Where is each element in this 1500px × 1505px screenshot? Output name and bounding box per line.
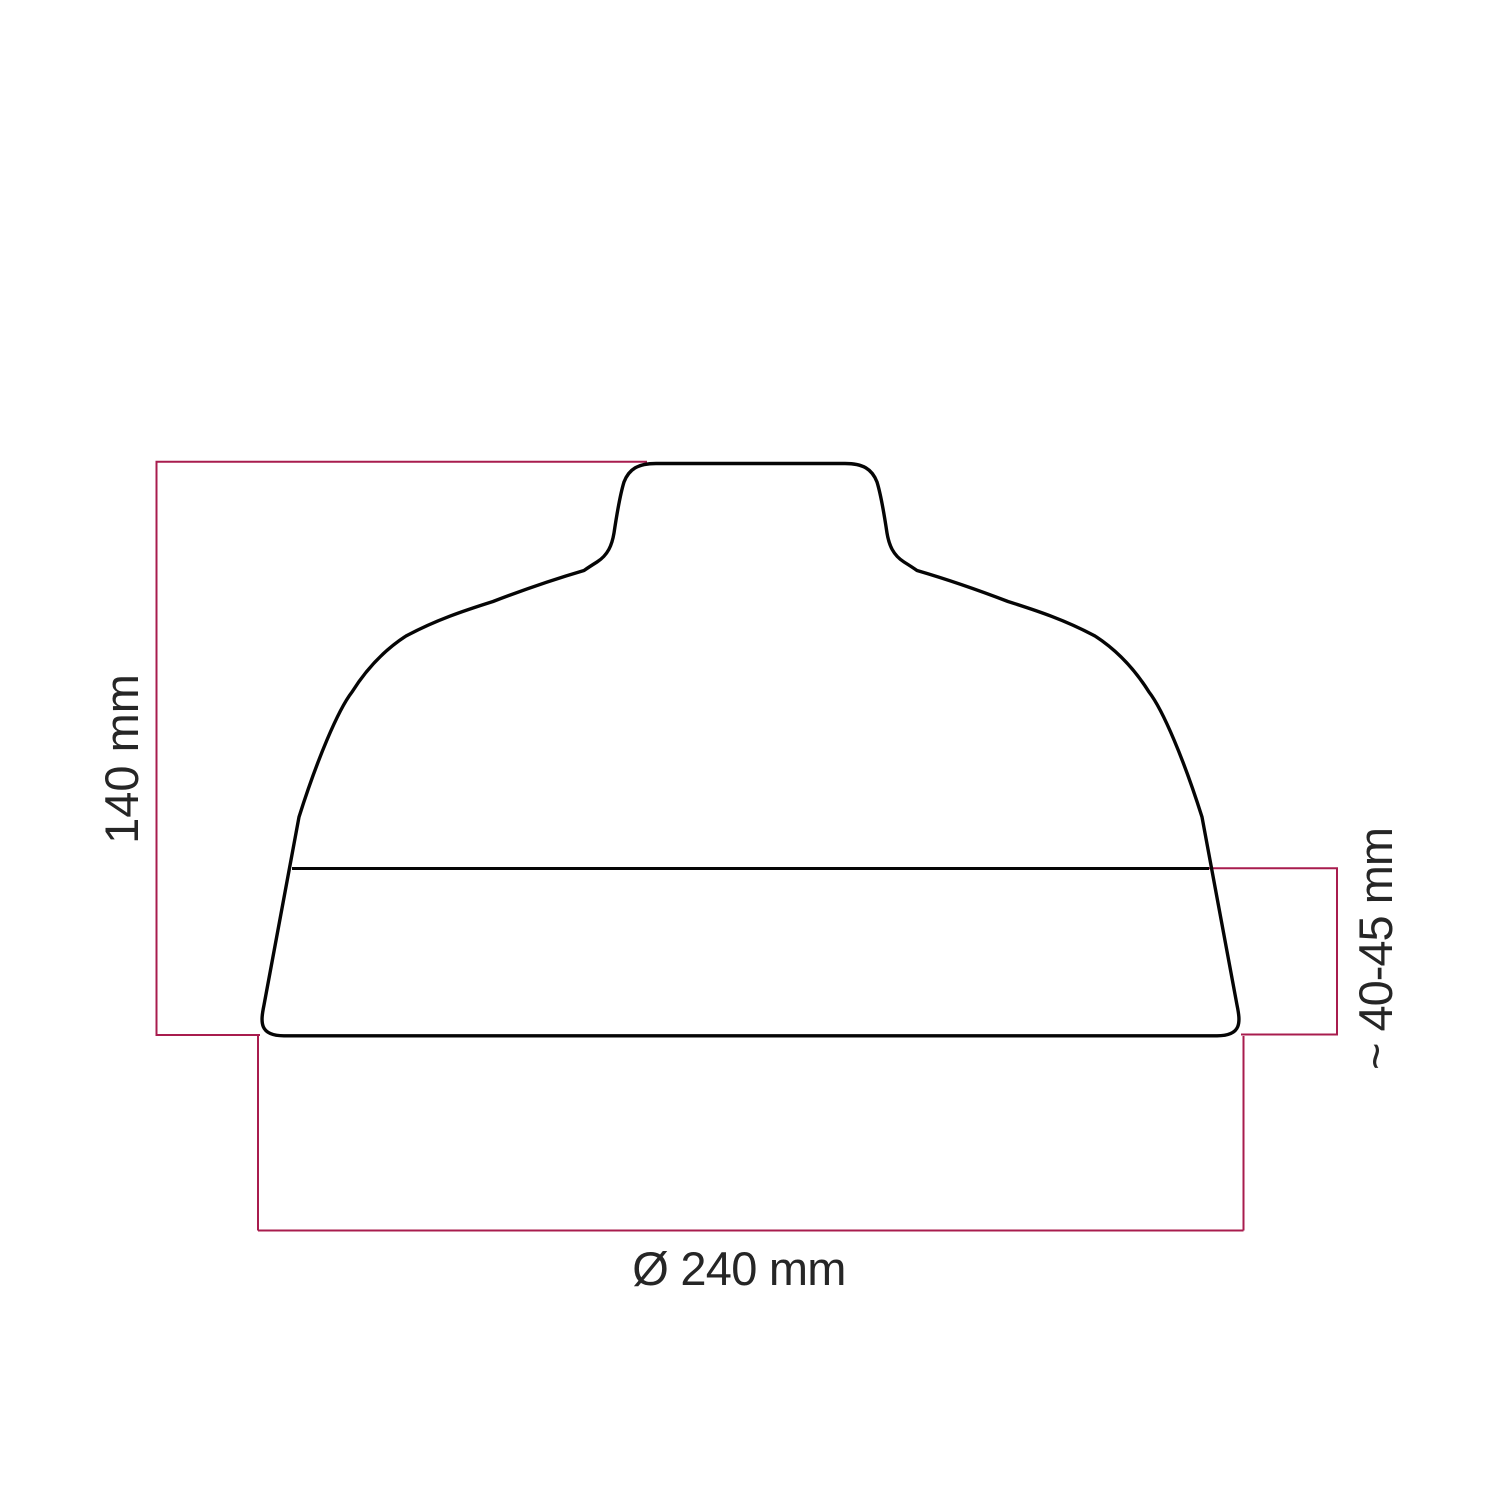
svg-text:140 mm: 140 mm — [95, 674, 148, 844]
svg-text:Ø 240 mm: Ø 240 mm — [632, 1242, 845, 1295]
svg-text:~ 40-45 mm: ~ 40-45 mm — [1349, 828, 1402, 1070]
